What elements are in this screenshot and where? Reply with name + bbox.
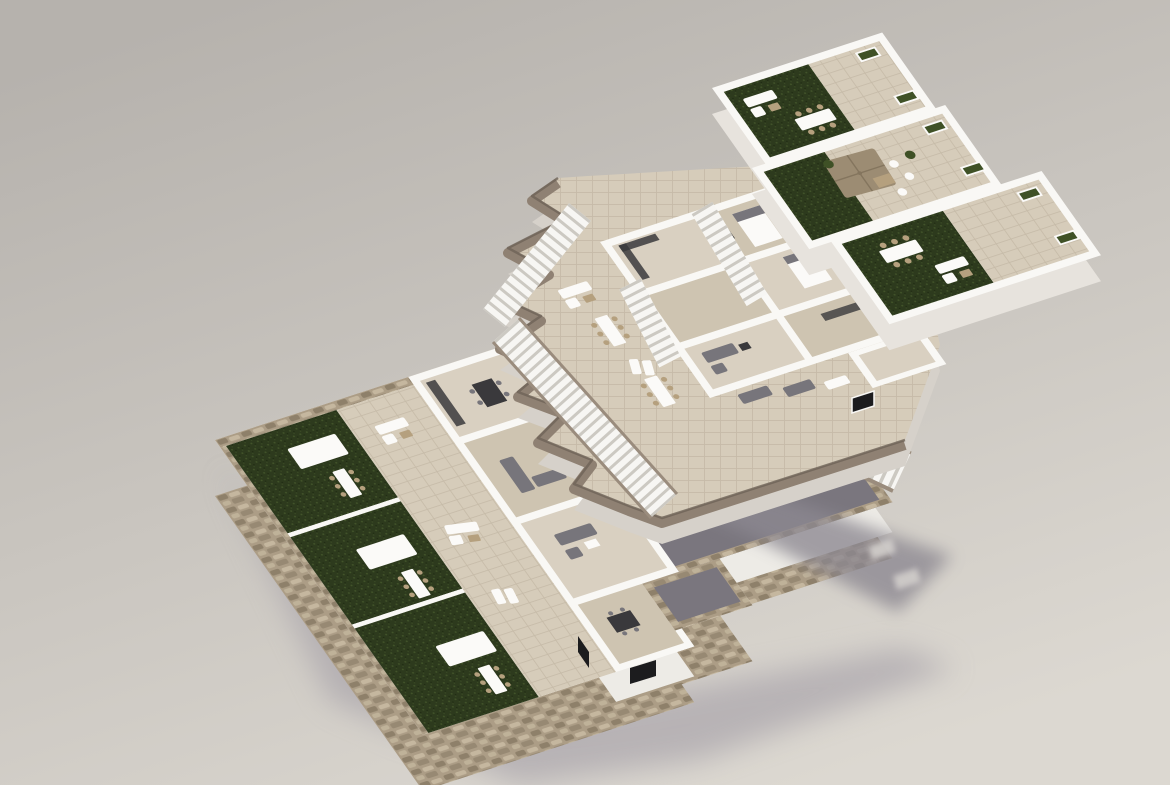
floor-plan-render bbox=[0, 0, 1170, 785]
scene-canvas bbox=[0, 0, 1170, 785]
